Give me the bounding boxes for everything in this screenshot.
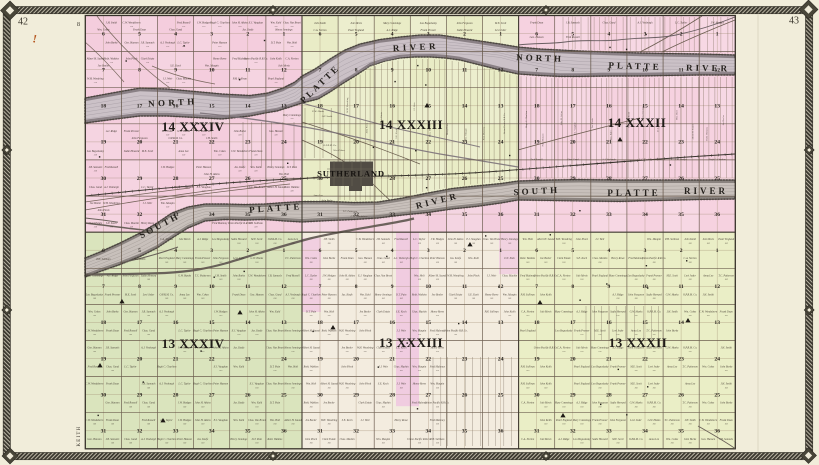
svg-text:Chas. Gund: Chas. Gund — [377, 257, 390, 260]
svg-text:Wm. Holt: Wm. Holt — [675, 110, 678, 120]
svg-text:Fred Maloney: Fred Maloney — [429, 366, 446, 369]
svg-text:Wm. Maupin: Wm. Maupin — [161, 202, 176, 205]
svg-text:Peter Hanson: Peter Hanson — [212, 383, 229, 386]
svg-text:35: 35 — [462, 429, 468, 435]
svg-text:E.J. Vaughan: E.J. Vaughan — [357, 274, 373, 277]
svg-text:John Burke: John Burke — [684, 438, 697, 441]
svg-text:A.J. Vosburgh: A.J. Vosburgh — [158, 383, 175, 386]
svg-text:J.H. Smith: J.H. Smith — [322, 115, 333, 118]
svg-text:J.J. Weir: J.J. Weir — [397, 329, 407, 332]
svg-text:Wm. Cokes: Wm. Cokes — [666, 438, 678, 441]
svg-text:Robt. Watkins: Robt. Watkins — [303, 402, 319, 405]
svg-text:John Keith: John Keith — [504, 310, 516, 313]
svg-text:Joe Beeler: Joe Beeler — [323, 402, 335, 405]
svg-text:29: 29 — [353, 393, 359, 399]
svg-text:Henry Jennings: Henry Jennings — [283, 329, 301, 332]
svg-text:Henry Rowe: Henry Rowe — [446, 123, 449, 135]
svg-text:M.E. Scott: M.E. Scott — [629, 366, 642, 369]
svg-text:11: 11 — [678, 68, 683, 74]
svg-text:24: 24 — [714, 140, 720, 146]
svg-text:PLATTE: PLATTE — [608, 60, 662, 72]
svg-text:12: 12 — [498, 68, 504, 74]
svg-text:17: 17 — [353, 104, 359, 110]
svg-text:Anna Lee: Anna Lee — [630, 329, 642, 332]
svg-text:Jule Mevis: Jule Mevis — [350, 22, 362, 25]
svg-text:Sadie Howard: Sadie Howard — [646, 293, 662, 296]
svg-text:7: 7 — [535, 284, 538, 290]
svg-text:G.W. Hanks: G.W. Hanks — [178, 274, 191, 277]
svg-text:14: 14 — [678, 320, 684, 326]
svg-text:Geo. Hansen: Geo. Hansen — [123, 310, 138, 313]
svg-text:Hugh C. Charlton: Hugh C. Charlton — [525, 110, 528, 128]
svg-text:Lou Boguslasky: Lou Boguslasky — [86, 150, 105, 153]
svg-text:G.W. Hanks: G.W. Hanks — [630, 402, 643, 405]
svg-text:John Burke: John Burke — [720, 402, 733, 405]
svg-text:Wm. Maupin: Wm. Maupin — [205, 65, 220, 68]
svg-text:28: 28 — [606, 176, 612, 182]
svg-text:Robt. Watkins: Robt. Watkins — [303, 366, 319, 369]
svg-text:14: 14 — [462, 104, 468, 110]
svg-text:Mary Cummings: Mary Cummings — [572, 419, 591, 422]
svg-text:John Plock: John Plock — [359, 383, 372, 386]
svg-text:O.P.R.M. Co.: O.P.R.M. Co. — [683, 347, 698, 350]
svg-text:26: 26 — [678, 176, 684, 182]
svg-text:M.E. Scott: M.E. Scott — [593, 329, 606, 332]
svg-text:John H. Atkins: John H. Atkins — [195, 402, 211, 405]
svg-text:Frank Dean: Frank Dean — [340, 257, 355, 260]
svg-text:7: 7 — [102, 284, 105, 290]
svg-text:M.E. Scott: M.E. Scott — [629, 383, 642, 386]
svg-text:21: 21 — [173, 356, 179, 362]
svg-text:Jas. Keefe: Jas. Keefe — [197, 438, 209, 441]
svg-text:Union Pacific R.R.Co.: Union Pacific R.R.Co. — [425, 402, 449, 405]
svg-text:Mary Cummings: Mary Cummings — [84, 274, 103, 277]
svg-text:Frank Dean: Frank Dean — [231, 293, 246, 296]
svg-text:27: 27 — [642, 393, 648, 399]
svg-text:Fred Russell: Fred Russell — [285, 274, 300, 277]
svg-text:Pearl England: Pearl England — [347, 29, 364, 32]
svg-text:J.H. Smith: J.H. Smith — [323, 238, 335, 241]
svg-text:P.H. Sullivan: P.H. Sullivan — [248, 222, 264, 225]
svg-text:18: 18 — [317, 320, 323, 326]
svg-text:Frank Prosser: Frank Prosser — [194, 257, 211, 260]
svg-text:Frank Prosser: Frank Prosser — [609, 383, 626, 386]
svg-text:Jas. Keefe: Jas. Keefe — [591, 118, 594, 128]
svg-text:2: 2 — [463, 31, 466, 37]
svg-text:John Keith: John Keith — [540, 293, 552, 296]
svg-text:Wm. Kuhl: Wm. Kuhl — [250, 166, 261, 169]
svg-text:John Burke: John Burke — [321, 199, 333, 202]
svg-text:Albert H. Saund: Albert H. Saund — [266, 186, 285, 189]
svg-text:J.H. Smith: J.H. Smith — [721, 347, 733, 350]
svg-text:Peter Hanson: Peter Hanson — [429, 257, 446, 260]
svg-text:Geo. Hansen: Geo. Hansen — [269, 130, 284, 133]
svg-text:Fred Russell: Fred Russell — [176, 22, 191, 25]
svg-text:J.W. Hodges: J.W. Hodges — [178, 419, 191, 422]
svg-text:26: 26 — [245, 176, 251, 182]
svg-text:J.B. Samuels: J.B. Samuels — [566, 22, 580, 25]
svg-text:26: 26 — [462, 176, 468, 182]
svg-text:Robt. Watkins: Robt. Watkins — [411, 293, 427, 296]
svg-text:Wm. Kuhl: Wm. Kuhl — [360, 293, 371, 296]
svg-text:Hugh C. Charlton: Hugh C. Charlton — [409, 257, 430, 260]
svg-text:24: 24 — [498, 140, 504, 146]
svg-text:S.E. Koch: S.E. Koch — [342, 419, 353, 422]
svg-text:26: 26 — [245, 393, 251, 399]
svg-text:John Ferguson: John Ferguson — [592, 310, 609, 313]
svg-text:Chas. Mackin: Chas. Mackin — [502, 274, 518, 277]
svg-text:Frank Dean: Frank Dean — [529, 22, 544, 25]
svg-text:5: 5 — [138, 248, 141, 254]
svg-text:Clark Estate: Clark Estate — [376, 310, 390, 313]
svg-text:J.B. Samuels: J.B. Samuels — [268, 274, 282, 277]
svg-text:T.C. Patterson: T.C. Patterson — [195, 274, 211, 277]
svg-text:A.J. Vosburgh: A.J. Vosburgh — [158, 310, 175, 313]
svg-text:Henry Jennings: Henry Jennings — [266, 166, 284, 169]
svg-text:14 XXXII: 14 XXXII — [608, 115, 667, 130]
svg-text:Lou Boguslasky: Lou Boguslasky — [211, 238, 230, 241]
svg-text:Sadie Howard: Sadie Howard — [610, 402, 626, 405]
svg-text:J.W. Hodges: J.W. Hodges — [214, 310, 227, 313]
svg-text:10: 10 — [426, 68, 432, 74]
svg-text:Geo. Hansen: Geo. Hansen — [124, 42, 139, 45]
svg-text:John Burke: John Burke — [234, 130, 247, 133]
svg-text:O.P.R.M. Co.: O.P.R.M. Co. — [683, 293, 698, 296]
svg-text:25: 25 — [281, 393, 287, 399]
svg-text:8: 8 — [138, 284, 141, 290]
svg-text:C.W. Wendeborn: C.W. Wendeborn — [85, 419, 104, 422]
svg-text:Jas. Keefe: Jas. Keefe — [251, 329, 263, 332]
svg-text:Chas. Mackin: Chas. Mackin — [176, 78, 192, 81]
svg-text:T.C. Patterson: T.C. Patterson — [664, 419, 680, 422]
svg-text:21: 21 — [389, 140, 395, 146]
svg-text:Anna Lee: Anna Lee — [177, 150, 189, 153]
svg-text:C.A. Norton: C.A. Norton — [160, 238, 174, 241]
svg-text:4: 4 — [174, 248, 177, 254]
svg-text:31: 31 — [317, 212, 323, 218]
svg-text:C.W. Wendeborn: C.W. Wendeborn — [85, 383, 104, 386]
svg-text:32: 32 — [137, 429, 143, 435]
svg-text:J.W. Hodges: J.W. Hodges — [431, 238, 444, 241]
svg-text:P.H. Sullivan: P.H. Sullivan — [520, 293, 536, 296]
svg-text:S.E. Koch: S.E. Koch — [396, 310, 407, 313]
svg-text:Wm. Kuhl: Wm. Kuhl — [233, 419, 244, 422]
svg-text:Peter Hanson: Peter Hanson — [212, 329, 229, 332]
svg-text:Anna Lee: Anna Lee — [702, 274, 714, 277]
svg-text:Chas. Gund: Chas. Gund — [268, 293, 281, 296]
svg-text:Jas. Keefe: Jas. Keefe — [234, 166, 246, 169]
svg-text:J.H. Smith: J.H. Smith — [684, 419, 696, 422]
svg-text:Clark Estate: Clark Estate — [358, 402, 372, 405]
svg-text:Lou Boguslasky: Lou Boguslasky — [572, 438, 591, 441]
svg-text:22: 22 — [209, 356, 215, 362]
svg-text:Wm. Maupin: Wm. Maupin — [503, 293, 518, 296]
svg-text:17: 17 — [353, 320, 359, 326]
svg-text:John Keith: John Keith — [540, 366, 552, 369]
svg-text:24: 24 — [498, 356, 504, 362]
svg-text:John Burke: John Burke — [106, 310, 119, 313]
svg-text:22: 22 — [426, 356, 432, 362]
svg-text:S.E. Koch: S.E. Koch — [106, 222, 117, 225]
svg-text:13: 13 — [281, 104, 287, 110]
svg-text:A.J. Vosburgh: A.J. Vosburgh — [103, 186, 120, 189]
svg-text:Wm. Holt: Wm. Holt — [324, 310, 335, 313]
svg-text:Hugh C. Charlton: Hugh C. Charlton — [192, 329, 213, 332]
svg-text:L.C. Taylor: L.C. Taylor — [674, 22, 688, 25]
svg-text:36: 36 — [714, 429, 720, 435]
svg-text:John Keith: John Keith — [540, 383, 552, 386]
svg-text:Frank Dean: Frank Dean — [719, 419, 734, 422]
svg-text:P.H. Sullivan: P.H. Sullivan — [429, 438, 445, 441]
svg-text:John H. Atkins: John H. Atkins — [232, 22, 248, 25]
svg-text:21: 21 — [389, 356, 395, 362]
svg-text:Wm. Maupin: Wm. Maupin — [376, 438, 391, 441]
svg-text:P.H. Sullivan: P.H. Sullivan — [95, 258, 111, 261]
svg-text:28: 28 — [173, 393, 179, 399]
svg-text:Union Pacific R.R.Co.: Union Pacific R.R.Co. — [534, 274, 558, 277]
svg-text:W.H. Woodring: W.H. Woodring — [556, 238, 573, 241]
svg-text:19: 19 — [317, 356, 323, 362]
svg-text:Union Pacific R.R.Co.: Union Pacific R.R.Co. — [244, 58, 268, 61]
svg-text:O.P.R.M. Co.: O.P.R.M. Co. — [647, 310, 662, 313]
svg-text:21: 21 — [606, 356, 612, 362]
svg-text:John H. Atkins: John H. Atkins — [195, 419, 211, 422]
svg-text:29: 29 — [137, 393, 143, 399]
svg-text:D.T. Pain: D.T. Pain — [305, 310, 317, 313]
svg-text:Joe Beeler: Joe Beeler — [341, 347, 353, 350]
svg-text:John Ferguson: John Ferguson — [213, 257, 230, 260]
svg-text:2: 2 — [246, 31, 249, 37]
svg-text:S.E. Koch: S.E. Koch — [170, 65, 181, 68]
svg-text:John Keith: John Keith — [684, 238, 696, 241]
svg-text:Fred Russell: Fred Russell — [531, 158, 543, 161]
svg-text:J.B. Samuels: J.B. Samuels — [142, 383, 156, 386]
svg-text:John Burke: John Burke — [720, 366, 733, 369]
svg-text:John Plock: John Plock — [305, 438, 318, 441]
svg-text:Pearl England: Pearl England — [555, 419, 572, 422]
svg-text:33: 33 — [389, 429, 395, 435]
svg-text:27: 27 — [209, 393, 215, 399]
svg-text:20: 20 — [570, 356, 576, 362]
svg-text:Lou Boguslasky: Lou Boguslasky — [590, 383, 609, 386]
svg-text:Fred Russell: Fred Russell — [104, 166, 119, 169]
svg-text:Chas. Van Brunt: Chas. Van Brunt — [374, 274, 392, 277]
svg-text:Hugh C. Charlton: Hugh C. Charlton — [173, 186, 194, 189]
svg-text:15: 15 — [426, 320, 432, 326]
svg-text:19: 19 — [317, 140, 323, 146]
svg-text:J.H. Smith: J.H. Smith — [206, 137, 218, 140]
svg-text:Fred Russell: Fred Russell — [141, 419, 156, 422]
svg-text:Joe Beeler: Joe Beeler — [305, 419, 317, 422]
svg-text:1: 1 — [499, 31, 502, 37]
svg-text:Joe Beeler: Joe Beeler — [359, 310, 371, 313]
svg-text:Jas. Keefe: Jas. Keefe — [450, 257, 462, 260]
svg-text:Robt. Watkins: Robt. Watkins — [321, 329, 337, 332]
svg-text:14: 14 — [462, 320, 468, 326]
svg-text:A.J. Ridge: A.J. Ridge — [386, 29, 399, 32]
svg-text:15: 15 — [209, 104, 215, 110]
svg-text:34: 34 — [642, 212, 648, 218]
svg-text:36: 36 — [714, 212, 720, 218]
svg-text:W.H. Woodring: W.H. Woodring — [447, 274, 464, 277]
svg-text:C.W. Wendeborn: C.W. Wendeborn — [699, 419, 718, 422]
svg-text:Sadie Howard: Sadie Howard — [610, 310, 626, 313]
svg-text:35: 35 — [678, 212, 684, 218]
svg-text:J.B. Samuels: J.B. Samuels — [88, 166, 102, 169]
svg-text:6: 6 — [319, 31, 322, 37]
svg-text:O.P.R.M. Co.: O.P.R.M. Co. — [647, 402, 662, 405]
svg-text:Robt. Watkins: Robt. Watkins — [103, 58, 119, 61]
svg-text:1: 1 — [499, 248, 502, 254]
svg-text:18: 18 — [534, 320, 540, 326]
svg-text:Wm. Kuhl: Wm. Kuhl — [270, 310, 281, 313]
svg-text:Wm. Kuhl: Wm. Kuhl — [468, 257, 479, 260]
svg-text:D.T. Pain: D.T. Pain — [270, 42, 282, 45]
svg-text:Albert H. Saund: Albert H. Saund — [301, 329, 320, 332]
svg-text:J.W. Hodges: J.W. Hodges — [675, 158, 687, 161]
svg-text:Fred Maloney: Fred Maloney — [211, 222, 228, 225]
svg-text:Hugh C. Charlton: Hugh C. Charlton — [156, 438, 177, 441]
svg-text:Lou Boguslasky: Lou Boguslasky — [85, 293, 104, 296]
svg-text:Chas. Van Brunt: Chas. Van Brunt — [283, 22, 301, 25]
svg-text:John Keith: John Keith — [540, 419, 552, 422]
svg-text:Jule Mevis: Jule Mevis — [576, 274, 588, 277]
svg-text:G.W. Hanks: G.W. Hanks — [630, 310, 643, 313]
svg-text:Fred Maloney: Fred Maloney — [429, 419, 446, 422]
svg-text:A.J. Vosburgh: A.J. Vosburgh — [140, 347, 157, 350]
svg-text:31: 31 — [534, 429, 540, 435]
svg-text:Wm. Cokes: Wm. Cokes — [197, 293, 209, 296]
svg-text:34: 34 — [209, 429, 215, 435]
svg-text:Anna Lee: Anna Lee — [312, 194, 323, 197]
svg-text:Geo. Hansen: Geo. Hansen — [87, 347, 102, 350]
svg-text:16: 16 — [606, 104, 612, 110]
svg-text:4: 4 — [391, 31, 394, 37]
svg-text:Jas. Keefe: Jas. Keefe — [342, 293, 354, 296]
svg-text:J.H. Smith: J.H. Smith — [215, 274, 227, 277]
svg-text:27: 27 — [642, 176, 648, 182]
svg-text:M.E. Scott: M.E. Scott — [665, 274, 678, 277]
svg-text:J.B. Samuels: J.B. Samuels — [376, 238, 390, 241]
svg-text:42: 42 — [18, 17, 28, 28]
svg-text:Wm. Maupin: Wm. Maupin — [647, 238, 662, 241]
svg-text:Jule Mevis: Jule Mevis — [702, 238, 714, 241]
svg-text:26: 26 — [462, 393, 468, 399]
svg-text:J.W. Hodges: J.W. Hodges — [161, 166, 174, 169]
svg-text:Albert H. Saund: Albert H. Saund — [319, 383, 338, 386]
svg-text:W.H. Woodring: W.H. Woodring — [87, 78, 104, 81]
svg-text:A.J. Vosburgh: A.J. Vosburgh — [284, 293, 301, 296]
svg-text:J.B. Samuels: J.B. Samuels — [141, 42, 155, 45]
svg-text:14 XXXIV: 14 XXXIV — [162, 119, 225, 134]
svg-text:3: 3 — [210, 31, 213, 37]
svg-text:Frank Dean: Frank Dean — [105, 329, 120, 332]
svg-text:C.A. Norton: C.A. Norton — [557, 274, 571, 277]
svg-text:KEITH: KEITH — [77, 426, 82, 447]
svg-text:C.A. Norton: C.A. Norton — [285, 58, 299, 61]
svg-text:29: 29 — [570, 393, 576, 399]
svg-text:27: 27 — [209, 176, 215, 182]
svg-text:G.W. Hanks: G.W. Hanks — [666, 293, 679, 296]
svg-text:J.J. Weir: J.J. Weir — [360, 419, 370, 422]
svg-text:Chas. Mackin: Chas. Mackin — [340, 438, 356, 441]
svg-text:Joe Beeler: Joe Beeler — [90, 202, 102, 205]
svg-text:Frank Dean: Frank Dean — [105, 383, 120, 386]
svg-text:Wm. Cokes: Wm. Cokes — [684, 310, 696, 313]
svg-text:Levi Joder: Levi Joder — [647, 383, 660, 386]
svg-text:30: 30 — [101, 393, 107, 399]
svg-text:D.T. Pain: D.T. Pain — [251, 438, 263, 441]
svg-text:Sadie Howard: Sadie Howard — [141, 274, 157, 277]
svg-text:29: 29 — [570, 176, 576, 182]
svg-text:19: 19 — [101, 356, 107, 362]
svg-text:4: 4 — [391, 248, 394, 254]
svg-text:18: 18 — [534, 104, 540, 110]
svg-text:C.W. Wendeborn: C.W. Wendeborn — [351, 215, 368, 218]
svg-text:33: 33 — [173, 429, 179, 435]
svg-text:Wm. Holt: Wm. Holt — [270, 419, 281, 422]
svg-text:17: 17 — [570, 104, 576, 110]
svg-text:L.C. Taylor: L.C. Taylor — [412, 238, 426, 241]
svg-text:Chas. Gund: Chas. Gund — [106, 366, 119, 369]
svg-text:Pearl England: Pearl England — [717, 238, 734, 241]
svg-text:28: 28 — [173, 176, 179, 182]
svg-text:Union Pacific R.R.Co.: Union Pacific R.R.Co. — [503, 112, 506, 134]
svg-text:Clark Estate: Clark Estate — [322, 438, 336, 441]
svg-text:13: 13 — [714, 104, 720, 110]
svg-text:Levi Joder: Levi Joder — [142, 293, 155, 296]
svg-text:33: 33 — [606, 429, 612, 435]
svg-text:M.E. Scott: M.E. Scott — [124, 293, 137, 296]
svg-text:24: 24 — [281, 140, 287, 146]
svg-text:Chas. Gund: Chas. Gund — [142, 329, 155, 332]
svg-text:8: 8 — [571, 68, 574, 74]
svg-text:23: 23 — [245, 140, 251, 146]
svg-text:E.J. Vaughan: E.J. Vaughan — [249, 383, 265, 386]
svg-text:19: 19 — [534, 140, 540, 146]
svg-text:13: 13 — [498, 320, 504, 326]
svg-text:Geo. Hansen: Geo. Hansen — [358, 257, 373, 260]
svg-text:Chas. Gund: Chas. Gund — [602, 22, 615, 25]
svg-text:Chas. Gund: Chas. Gund — [142, 402, 155, 405]
svg-text:34: 34 — [426, 429, 432, 435]
svg-text:John Burke: John Burke — [233, 274, 246, 277]
svg-text:O.P.R.M. Co.: O.P.R.M. Co. — [159, 293, 174, 296]
svg-text:Wm. Holt: Wm. Holt — [523, 238, 534, 241]
svg-text:C.W. Wendeborn: C.W. Wendeborn — [85, 329, 104, 332]
svg-text:6: 6 — [319, 248, 322, 254]
svg-text:9: 9 — [391, 284, 394, 290]
svg-text:A.J. Ridge: A.J. Ridge — [575, 402, 588, 405]
svg-text:G.W. Hanks: G.W. Hanks — [312, 110, 324, 113]
svg-text:C.W. Wendeborn: C.W. Wendeborn — [231, 150, 250, 153]
svg-text:Fred Russell: Fred Russell — [123, 329, 138, 332]
svg-text:John Plock: John Plock — [467, 274, 480, 277]
svg-text:3: 3 — [644, 248, 647, 254]
svg-text:10: 10 — [426, 284, 432, 290]
svg-text:A.J. Ridge: A.J. Ridge — [575, 310, 588, 313]
svg-text:J.J. Weir: J.J. Weir — [397, 383, 407, 386]
svg-text:Mary Cummings: Mary Cummings — [282, 114, 301, 117]
svg-text:Fred Russell: Fred Russell — [393, 238, 408, 241]
svg-text:J.W. Hodges: J.W. Hodges — [197, 22, 210, 25]
svg-text:Geo. Hansen: Geo. Hansen — [701, 438, 716, 441]
svg-text:Hugh C. Charlton: Hugh C. Charlton — [209, 22, 230, 25]
svg-text:Levi Joder: Levi Joder — [629, 419, 642, 422]
svg-text:L.C. Taylor: L.C. Taylor — [177, 383, 191, 386]
svg-text:31: 31 — [101, 429, 107, 435]
svg-text:John Burke: John Burke — [666, 329, 679, 332]
